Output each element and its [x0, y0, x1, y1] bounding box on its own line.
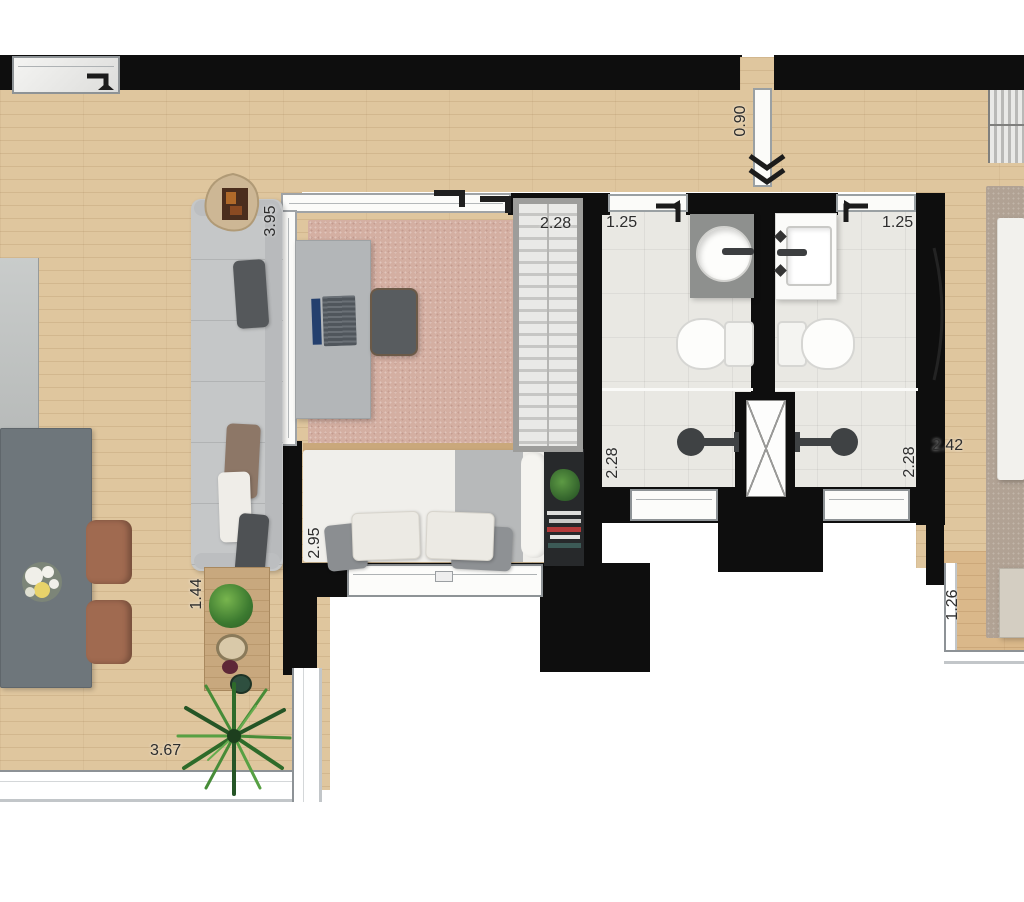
laptop-screen	[311, 299, 322, 345]
wardrobe	[513, 198, 583, 452]
bath2-shower-bracket	[795, 432, 800, 452]
master-wardrobe	[988, 90, 1024, 163]
wardrobe-clothes	[519, 204, 577, 446]
window-bathroom2	[823, 489, 910, 521]
bath2-toilet-bowl	[801, 318, 855, 370]
bath2-shower-partition	[775, 388, 918, 391]
wall-bath1-top	[686, 193, 753, 215]
sofa-pillow-dark-1	[233, 259, 270, 329]
bath1-shower-partition	[602, 388, 753, 391]
bathroom2-door-swing-icon	[836, 198, 872, 226]
bed1-pillow-white-2	[425, 511, 495, 561]
wall-balcony-right-corner	[926, 523, 944, 585]
dim-sofa-wall: 3.95	[262, 194, 280, 248]
bed1-pillow-white-1	[351, 511, 421, 561]
bath1-toilet-tank	[724, 321, 754, 367]
wall-corner-left	[283, 595, 317, 675]
dining-chair-2	[86, 600, 132, 664]
hall-floor	[283, 88, 1024, 192]
entry-opening	[740, 57, 774, 90]
book	[548, 543, 581, 548]
side-table	[200, 172, 266, 238]
sofa-pillow-dark-2	[234, 513, 269, 575]
dim-balcony-width: 3.67	[150, 742, 181, 760]
dim-bath2-depth: 2.28	[901, 435, 919, 489]
book	[547, 511, 581, 515]
dim-closet: 2.28	[540, 215, 571, 233]
dim-bed1-width: 2.95	[306, 516, 324, 570]
door-handles-icon	[432, 185, 524, 219]
laptop-keyboard	[322, 295, 357, 346]
bath1-toilet-bowl	[676, 318, 730, 370]
dim-bath1-depth: 2.28	[604, 436, 622, 490]
dim-entry-door: 0.90	[732, 94, 750, 148]
sofa-backrest	[265, 205, 282, 565]
balcony-plant-ball	[209, 584, 253, 628]
railing-balcony-right-bottom	[944, 650, 1024, 664]
ventilation-shaft	[746, 400, 786, 497]
bath2-shower-arm	[796, 438, 842, 446]
office-chair	[370, 288, 418, 356]
window-slide-icon	[84, 68, 114, 94]
dining-chair-1	[86, 520, 132, 584]
bath1-shower-arm	[692, 438, 738, 446]
wall-bath2-top	[773, 193, 838, 215]
table-centerpiece-flowers	[12, 550, 72, 614]
bath2-faucet	[777, 249, 807, 256]
floor-plan: 3.95 2.28 1.25 1.25 0.90 2.28 2.28 2.42 …	[0, 0, 1024, 902]
bookshelf-plant	[550, 469, 580, 501]
window-slider-tick	[435, 571, 453, 582]
bath2-sink	[786, 226, 832, 286]
master-bed	[997, 218, 1024, 480]
bath1-faucet	[722, 248, 754, 255]
window-bathroom1	[630, 489, 718, 521]
bath1-shower-bracket	[734, 432, 739, 452]
dim-bath1-width: 1.25	[606, 214, 637, 232]
master-door-arc	[930, 246, 952, 382]
balcony-bowl-2	[222, 660, 238, 674]
railing-balcony-left-side	[292, 668, 322, 802]
book	[547, 527, 581, 532]
wall-bath-divider	[751, 193, 775, 400]
wall-top-right	[774, 55, 1024, 90]
balcony-fern-plant	[172, 676, 296, 798]
book	[549, 519, 581, 523]
dim-bath2-width: 1.25	[882, 214, 913, 232]
dim-balcony2-depth: 1.26	[944, 578, 962, 632]
wall-chunk-south	[540, 563, 650, 672]
bathroom1-door-swing-icon	[652, 198, 688, 226]
dim-balcony-depth: 1.44	[188, 567, 206, 621]
bookshelf	[544, 449, 584, 566]
balcony-bowl-1	[216, 634, 248, 662]
window-bedroom1	[347, 564, 543, 597]
entry-direction-icon	[744, 152, 790, 190]
master-bench	[999, 568, 1024, 638]
dim-master-width: 2.42	[932, 437, 963, 455]
book	[550, 535, 580, 539]
laptop	[311, 293, 359, 349]
